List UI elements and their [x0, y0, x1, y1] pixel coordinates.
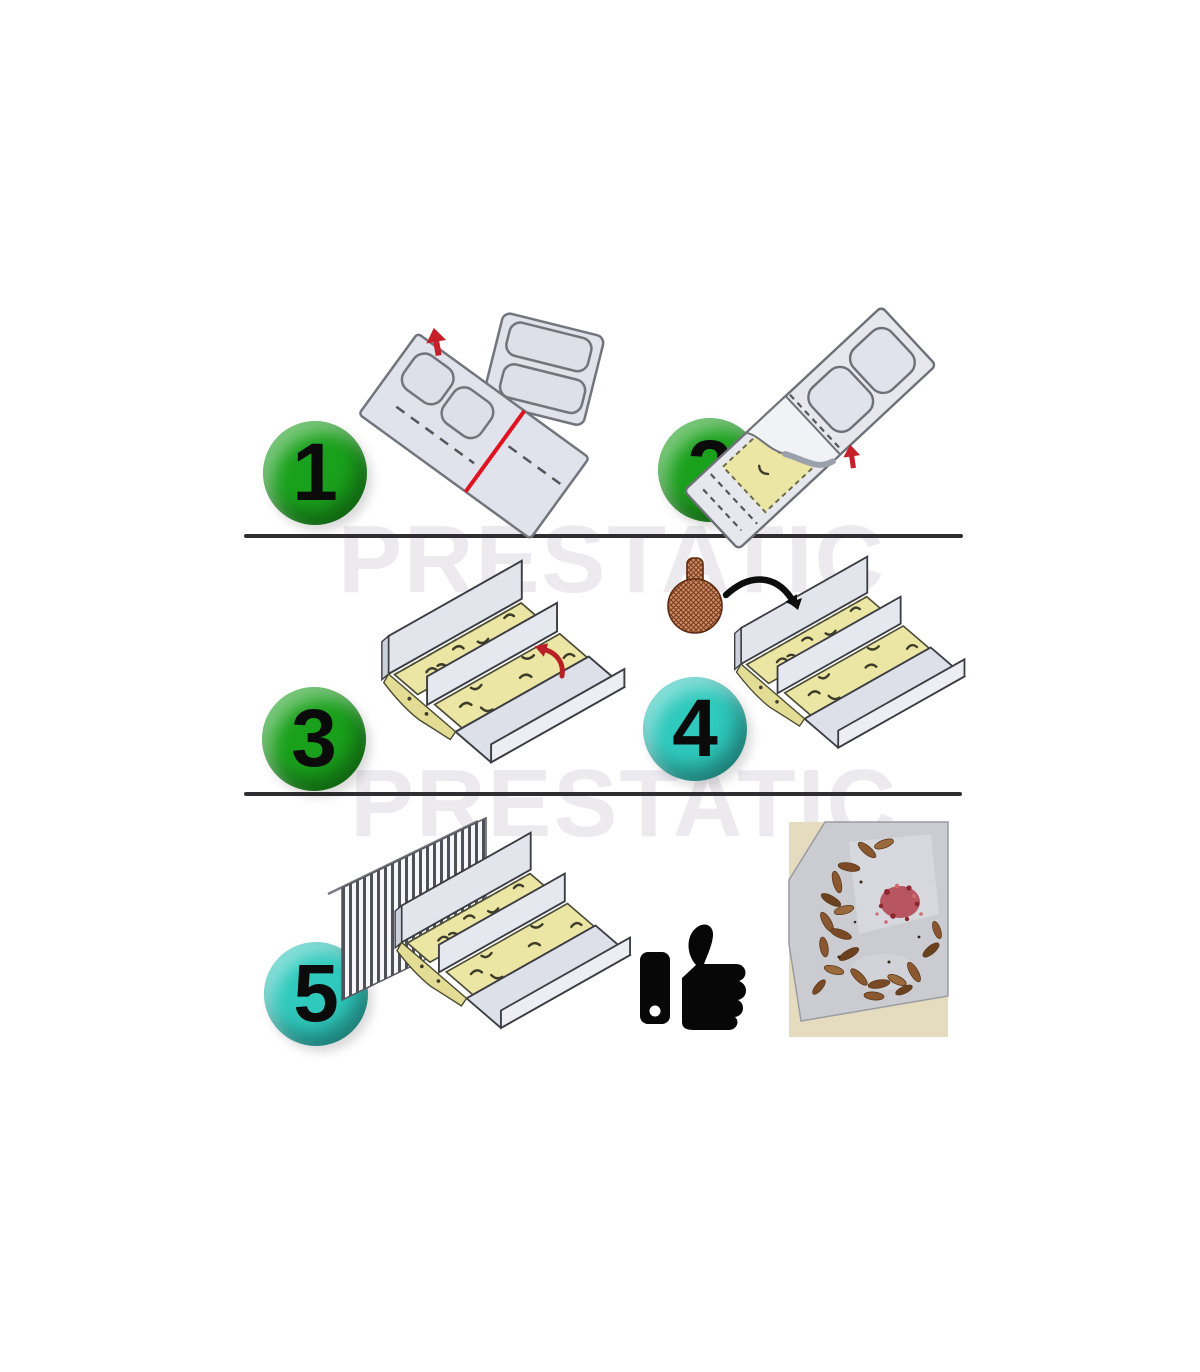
- section-divider-line: [244, 792, 962, 796]
- step-number-1: 1: [292, 426, 338, 520]
- result-photo-trapped-insects: [789, 822, 948, 1037]
- thumbs-up-icon: [636, 918, 764, 1040]
- step2-peel-liner-diagram: [688, 300, 944, 548]
- trap-strip: [684, 307, 936, 550]
- step4-add-bait-diagram: [646, 540, 984, 782]
- step-badge-1: 1: [263, 421, 367, 525]
- instruction-sheet: PRESTATIC PRESTATIC: [0, 0, 1200, 1372]
- step-badge-3: 3: [262, 687, 366, 791]
- step3-assembled-trap-diagram: [352, 546, 666, 784]
- step1-unfold-template-diagram: [358, 296, 620, 544]
- bait-ball-icon: [668, 558, 722, 633]
- step5-place-against-wall-diagram: [328, 808, 662, 1066]
- step-number-3: 3: [291, 692, 337, 786]
